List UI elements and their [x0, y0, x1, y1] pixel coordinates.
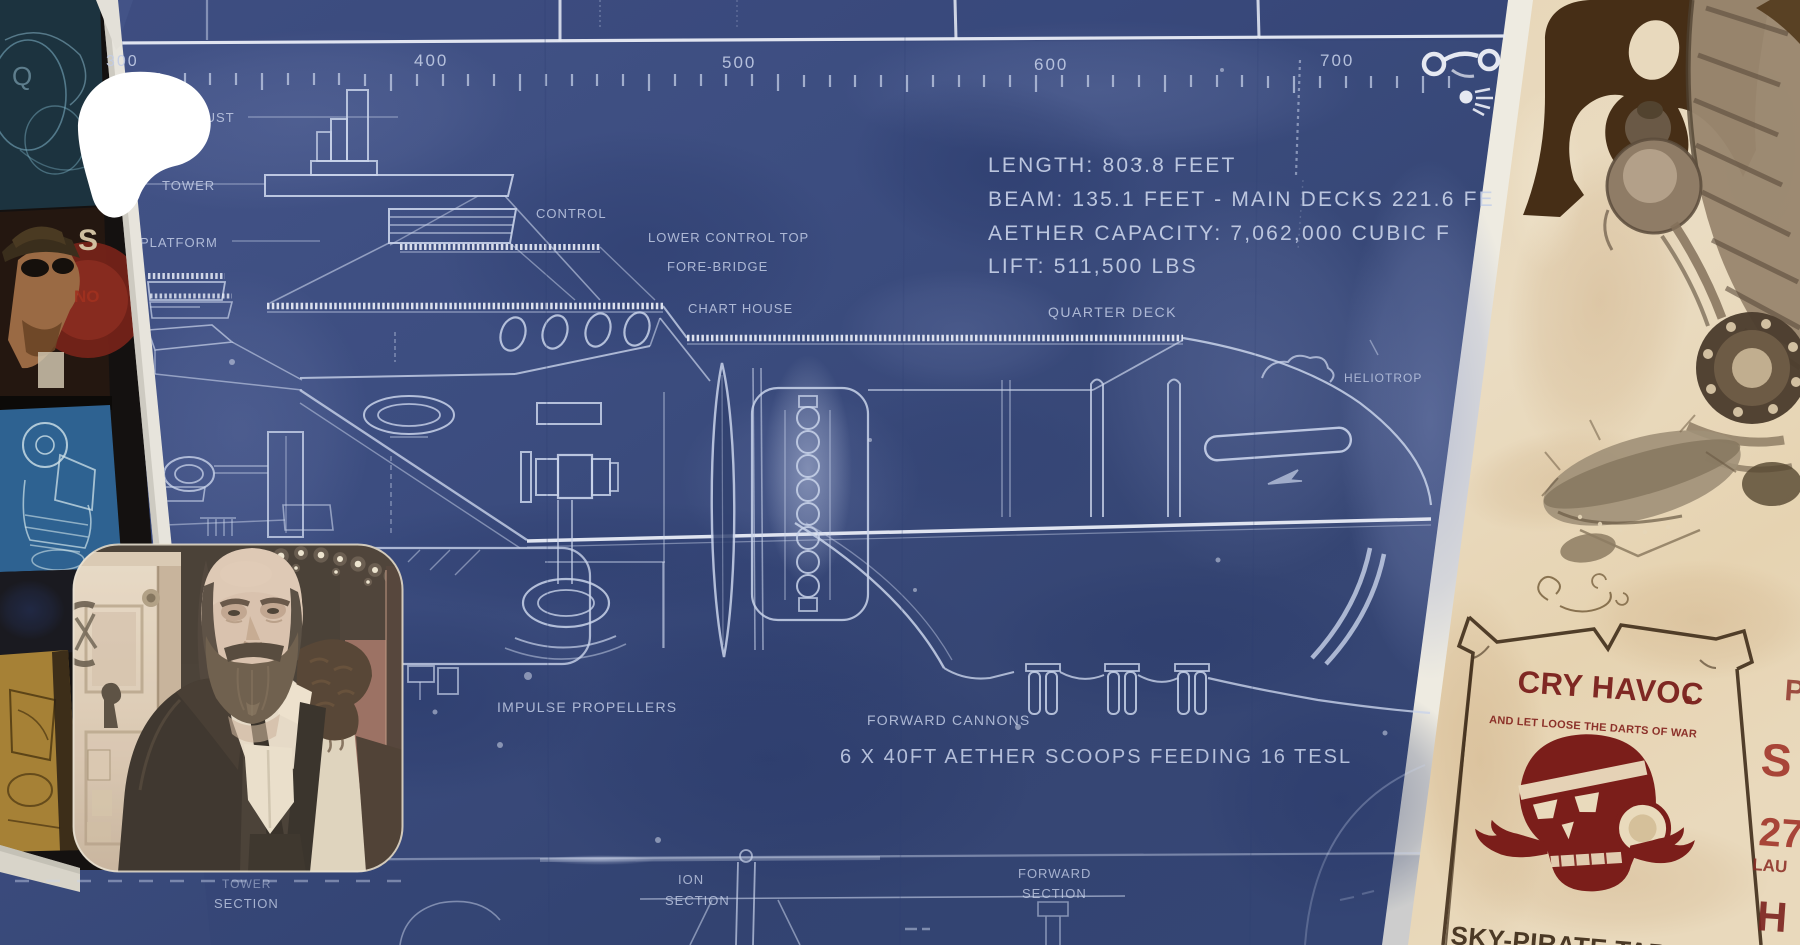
svg-text:700: 700: [1320, 51, 1354, 70]
svg-text:QUARTER DECK: QUARTER DECK: [1048, 304, 1177, 320]
svg-text:HELIOTROP: HELIOTROP: [1344, 371, 1422, 385]
svg-text:TOWER: TOWER: [162, 178, 215, 193]
svg-text:FORWARD CANNONS: FORWARD CANNONS: [867, 712, 1030, 728]
svg-text:S: S: [1759, 733, 1793, 787]
svg-text:FORWARD: FORWARD: [1018, 866, 1091, 881]
svg-text:H: H: [1755, 892, 1789, 941]
svg-text:LAU: LAU: [1752, 855, 1788, 876]
svg-text:LIFT: 511,500 LBS: LIFT: 511,500 LBS: [988, 255, 1198, 278]
svg-text:TOWER: TOWER: [222, 877, 271, 891]
svg-text:SECTION: SECTION: [1022, 886, 1087, 901]
svg-text:LOWER CONTROL TOP: LOWER CONTROL TOP: [648, 230, 809, 245]
svg-text:SECTION: SECTION: [214, 896, 279, 911]
svg-text:BEAM: 135.1 FEET - MAIN DECKS: BEAM: 135.1 FEET - MAIN DECKS 221.6 FE: [988, 188, 1495, 211]
svg-text:FORE-BRIDGE: FORE-BRIDGE: [667, 259, 768, 274]
svg-text:500: 500: [722, 53, 756, 72]
svg-text:S: S: [78, 224, 98, 257]
svg-text:NO: NO: [74, 287, 100, 306]
svg-text:CHART HOUSE: CHART HOUSE: [688, 301, 793, 316]
svg-text:6 X 40FT AETHER SCOOPS FEEDING: 6 X 40FT AETHER SCOOPS FEEDING 16 TESL: [840, 746, 1352, 768]
svg-text:SECTION: SECTION: [665, 893, 730, 908]
svg-text:IMPULSE PROPELLERS: IMPULSE PROPELLERS: [497, 699, 677, 715]
svg-text:ION: ION: [678, 872, 704, 887]
svg-text:P: P: [1784, 674, 1800, 708]
svg-text:LENGTH: 803.8 FEET: LENGTH: 803.8 FEET: [988, 154, 1237, 177]
svg-text:400: 400: [414, 51, 448, 70]
svg-text:AETHER CAPACITY: 7,062,000 CUB: AETHER CAPACITY: 7,062,000 CUBIC F: [988, 222, 1451, 245]
svg-text:600: 600: [1034, 55, 1068, 74]
svg-text:300: 300: [106, 53, 139, 70]
svg-text:27: 27: [1757, 810, 1800, 857]
svg-text:PLATFORM: PLATFORM: [140, 235, 218, 250]
svg-text:Q: Q: [12, 61, 32, 91]
